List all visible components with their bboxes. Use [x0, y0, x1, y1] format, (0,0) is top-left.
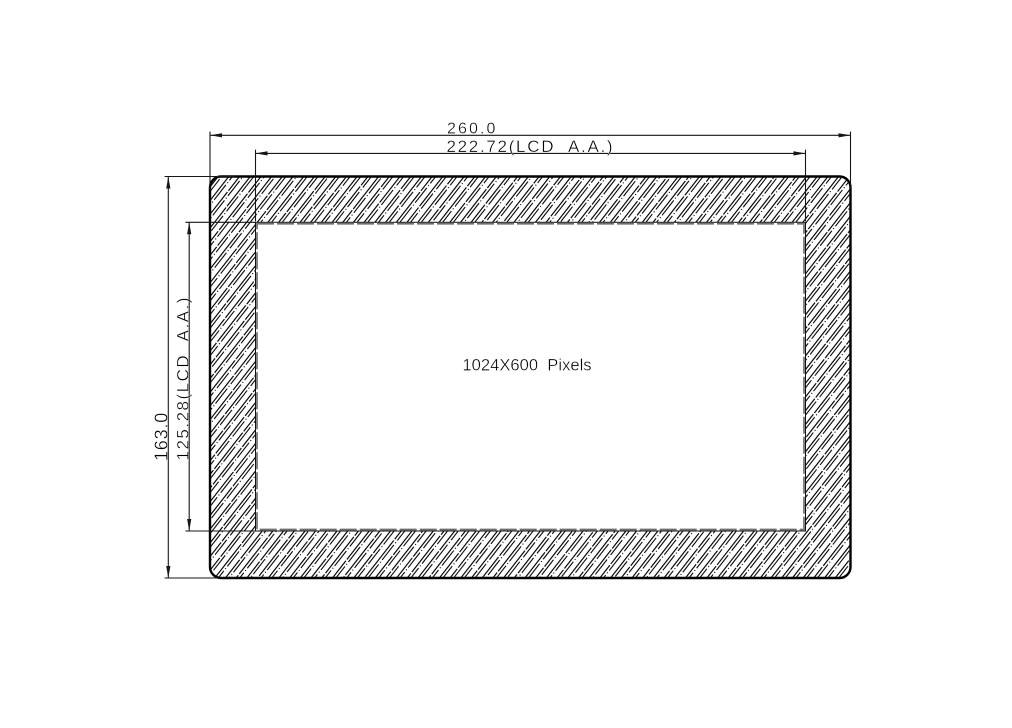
- svg-text:222.72(LCD A.A.): 222.72(LCD A.A.): [447, 137, 615, 156]
- svg-text:260.0: 260.0: [447, 120, 498, 137]
- svg-text:1024X600 Pixels: 1024X600 Pixels: [462, 356, 591, 375]
- svg-text:125.28(LCD A.A.): 125.28(LCD A.A.): [174, 296, 193, 460]
- svg-text:163.0: 163.0: [152, 412, 172, 461]
